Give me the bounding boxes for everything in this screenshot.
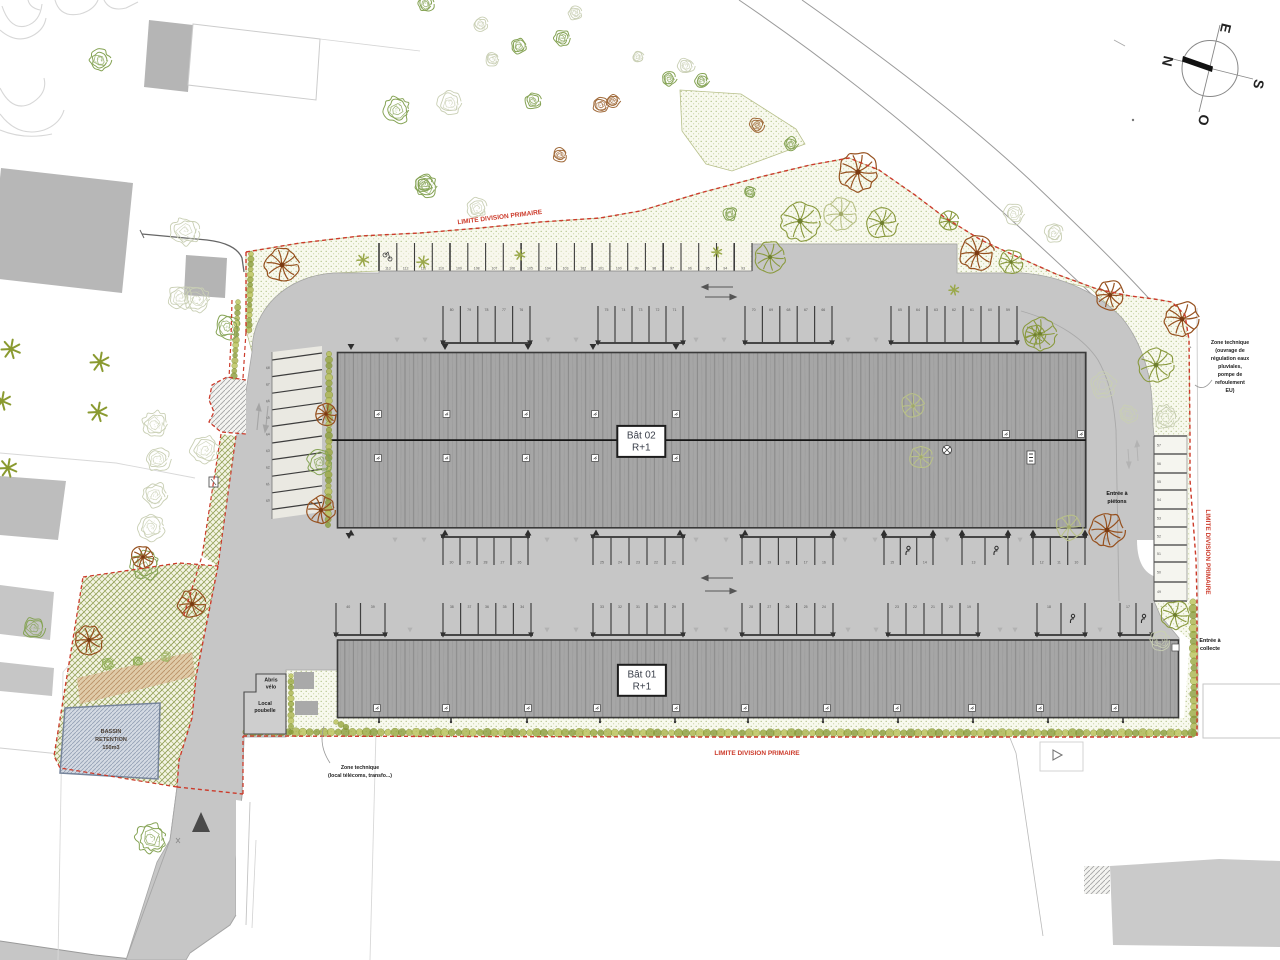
svg-text:68: 68 (266, 366, 270, 371)
svg-text:18: 18 (786, 561, 790, 565)
svg-text:72: 72 (656, 308, 660, 312)
svg-text:27: 27 (767, 605, 771, 609)
svg-text:61: 61 (970, 308, 974, 312)
svg-text:53: 53 (1157, 517, 1161, 521)
svg-text:21: 21 (672, 561, 676, 565)
svg-text:(ouvrage de: (ouvrage de (1215, 348, 1245, 354)
svg-text:20: 20 (949, 605, 953, 609)
svg-text:104: 104 (545, 267, 551, 271)
svg-text:59: 59 (1006, 308, 1010, 312)
svg-text:vélo: vélo (266, 685, 276, 691)
svg-text:68: 68 (787, 308, 791, 312)
svg-text:30: 30 (450, 561, 454, 565)
svg-text:19: 19 (767, 561, 771, 565)
svg-text:36: 36 (485, 605, 489, 609)
svg-text:23: 23 (895, 605, 899, 609)
svg-text:150m3: 150m3 (102, 745, 119, 751)
svg-text:Entrée à: Entrée à (1106, 491, 1128, 497)
svg-text:64: 64 (266, 432, 270, 437)
svg-text:25: 25 (804, 605, 808, 609)
svg-text:69: 69 (769, 308, 773, 312)
svg-text:37: 37 (467, 605, 471, 609)
svg-text:106: 106 (509, 267, 515, 271)
svg-text:33: 33 (600, 605, 604, 609)
svg-text:29: 29 (467, 561, 471, 565)
svg-text:18: 18 (1047, 605, 1051, 609)
svg-text:EU): EU) (1226, 388, 1235, 394)
svg-text:55: 55 (1157, 480, 1161, 484)
svg-text:LIMITE DIVISION PRIMAIRE: LIMITE DIVISION PRIMAIRE (1204, 509, 1211, 595)
svg-text:17: 17 (1126, 605, 1130, 609)
svg-text:29: 29 (672, 605, 676, 609)
svg-text:32: 32 (618, 605, 622, 609)
svg-text:108: 108 (474, 267, 480, 271)
svg-text:66: 66 (266, 399, 270, 404)
svg-text:Bât 02: Bât 02 (627, 430, 656, 441)
svg-text:103: 103 (563, 267, 569, 271)
svg-text:19: 19 (967, 605, 971, 609)
svg-text:24: 24 (822, 605, 826, 609)
svg-text:76: 76 (519, 308, 523, 312)
svg-text:15: 15 (890, 561, 894, 565)
svg-text:73: 73 (639, 308, 643, 312)
svg-text:98: 98 (652, 267, 656, 271)
svg-text:110: 110 (438, 267, 444, 271)
svg-text:22: 22 (654, 561, 658, 565)
svg-text:R+1: R+1 (632, 442, 651, 453)
svg-text:109: 109 (456, 267, 462, 271)
svg-text:12: 12 (1040, 561, 1044, 565)
svg-text:101: 101 (598, 267, 604, 271)
svg-text:R+1: R+1 (633, 681, 652, 692)
svg-text:56: 56 (1157, 462, 1161, 466)
svg-text:60: 60 (988, 308, 992, 312)
svg-text:23: 23 (636, 561, 640, 565)
svg-text:RETENTION: RETENTION (95, 737, 127, 743)
svg-text:16: 16 (822, 561, 826, 565)
svg-text:24: 24 (618, 561, 622, 565)
svg-text:30: 30 (654, 605, 658, 609)
svg-text:Local: Local (258, 701, 272, 707)
svg-text:94: 94 (723, 267, 727, 271)
svg-text:38: 38 (450, 605, 454, 609)
svg-text:28: 28 (749, 605, 753, 609)
svg-text:79: 79 (467, 308, 471, 312)
svg-text:25: 25 (600, 561, 604, 565)
svg-text:67: 67 (804, 308, 808, 312)
svg-text:pompe de: pompe de (1218, 372, 1243, 378)
svg-text:35: 35 (503, 605, 507, 609)
svg-text:63: 63 (934, 308, 938, 312)
svg-text:22: 22 (913, 605, 917, 609)
svg-text:pluviales,: pluviales, (1218, 364, 1242, 370)
svg-text:14: 14 (923, 561, 927, 565)
svg-text:Abris: Abris (264, 678, 277, 684)
svg-text:26: 26 (518, 561, 522, 565)
svg-text:75: 75 (605, 308, 609, 312)
svg-text:31: 31 (636, 605, 640, 609)
svg-text:39: 39 (371, 605, 375, 609)
svg-text:78: 78 (485, 308, 489, 312)
svg-text:96: 96 (688, 267, 692, 271)
svg-text:57: 57 (1157, 444, 1161, 448)
svg-text:51: 51 (1157, 552, 1161, 556)
svg-text:74: 74 (622, 308, 626, 312)
svg-text:63: 63 (266, 449, 270, 454)
svg-text:Zone technique: Zone technique (1211, 340, 1249, 346)
svg-text:20: 20 (749, 561, 753, 565)
svg-text:71: 71 (673, 308, 677, 312)
svg-text:52: 52 (1157, 535, 1161, 539)
svg-text:BASSIN: BASSIN (101, 729, 122, 735)
svg-text:64: 64 (916, 308, 920, 312)
svg-text:100: 100 (616, 267, 622, 271)
svg-text:Entrée à: Entrée à (1199, 638, 1221, 644)
svg-text:77: 77 (502, 308, 506, 312)
svg-text:Zone technique: Zone technique (341, 765, 379, 771)
svg-text:111: 111 (421, 267, 426, 271)
svg-text:27: 27 (501, 561, 505, 565)
svg-text:99: 99 (635, 267, 639, 271)
svg-text:collecte: collecte (1200, 646, 1220, 652)
svg-text:112: 112 (403, 267, 409, 271)
svg-text:80: 80 (450, 308, 454, 312)
svg-text:50: 50 (1157, 571, 1161, 575)
svg-text:62: 62 (952, 308, 956, 312)
svg-text:13: 13 (972, 561, 976, 565)
svg-text:piétons: piétons (1107, 499, 1126, 505)
svg-text:17: 17 (804, 561, 808, 565)
svg-text:10: 10 (1074, 561, 1078, 565)
svg-text:66: 66 (821, 308, 825, 312)
svg-text:107: 107 (492, 267, 498, 271)
svg-text:70: 70 (752, 308, 756, 312)
svg-text:97: 97 (670, 267, 674, 271)
svg-text:régulation eaux: régulation eaux (1211, 356, 1249, 362)
svg-text:28: 28 (484, 561, 488, 565)
svg-text:67: 67 (266, 382, 270, 387)
svg-text:60: 60 (266, 499, 270, 504)
svg-text:93: 93 (741, 267, 745, 271)
svg-text:113: 113 (385, 267, 391, 271)
svg-text:49: 49 (1157, 590, 1161, 594)
svg-text:(local télécoms, transfo...): (local télécoms, transfo...) (328, 773, 392, 779)
svg-text:61: 61 (266, 482, 270, 487)
svg-text:54: 54 (1157, 498, 1161, 502)
svg-text:21: 21 (931, 605, 935, 609)
svg-text:34: 34 (520, 605, 524, 609)
svg-text:65: 65 (898, 308, 902, 312)
svg-text:refoulement: refoulement (1215, 380, 1245, 386)
svg-text:105: 105 (527, 267, 533, 271)
svg-text:Bât 01: Bât 01 (627, 669, 656, 680)
svg-text:102: 102 (580, 267, 586, 271)
svg-text:62: 62 (266, 465, 270, 470)
svg-text:poubelle: poubelle (254, 708, 275, 714)
svg-text:11: 11 (1057, 561, 1061, 565)
svg-text:95: 95 (706, 267, 710, 271)
svg-text:LIMITE DIVISION PRIMAIRE: LIMITE DIVISION PRIMAIRE (714, 750, 800, 757)
svg-text:26: 26 (786, 605, 790, 609)
svg-text:40: 40 (346, 605, 350, 609)
